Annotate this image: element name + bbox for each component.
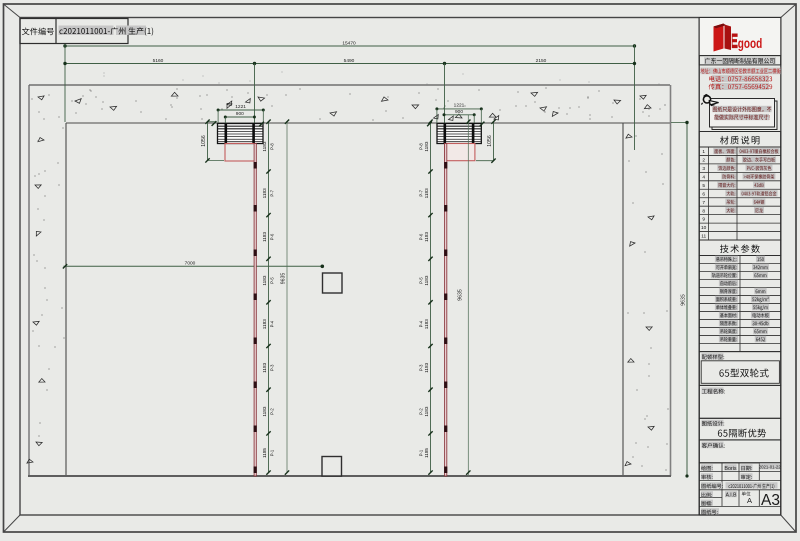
svg-text:A3: A3: [761, 492, 780, 509]
svg-text:P-2: P-2: [419, 408, 424, 415]
svg-text:8: 8: [702, 208, 705, 214]
svg-text:5160: 5160: [153, 58, 164, 64]
svg-text:1183: 1183: [262, 232, 267, 242]
svg-text:900: 900: [236, 111, 244, 117]
svg-text:1221: 1221: [235, 104, 246, 110]
svg-text:P-4: P-4: [270, 320, 275, 327]
svg-text:A: A: [747, 496, 752, 505]
svg-text:900: 900: [455, 109, 463, 115]
svg-text:P-6: P-6: [419, 233, 424, 240]
svg-text:P-4: P-4: [419, 320, 424, 327]
svg-text:1221: 1221: [454, 103, 465, 109]
svg-text:9635: 9635: [280, 273, 286, 285]
svg-text:1185: 1185: [424, 448, 429, 458]
svg-text:P-8: P-8: [419, 143, 424, 150]
svg-text:5490: 5490: [344, 58, 355, 64]
svg-text:1183: 1183: [424, 275, 429, 285]
svg-text:2: 2: [702, 158, 705, 164]
svg-text:good: good: [738, 35, 763, 51]
svg-text:1183: 1183: [424, 406, 429, 416]
svg-text:1183: 1183: [262, 362, 267, 372]
svg-text:1183: 1183: [262, 406, 267, 416]
svg-text:11: 11: [701, 234, 706, 240]
svg-text:P-2: P-2: [270, 408, 275, 415]
svg-text:P-8: P-8: [270, 143, 275, 150]
svg-text:1183: 1183: [424, 141, 429, 151]
svg-text:7: 7: [702, 200, 705, 206]
svg-text:P-3: P-3: [419, 364, 424, 371]
svg-text:6: 6: [702, 191, 705, 197]
svg-text:1183: 1183: [424, 232, 429, 242]
svg-text:P-5: P-5: [270, 277, 275, 284]
svg-text:5: 5: [702, 183, 705, 189]
svg-text:P-6: P-6: [270, 233, 275, 240]
svg-text:1183: 1183: [262, 141, 267, 151]
svg-text:1183: 1183: [424, 362, 429, 372]
svg-text:3: 3: [702, 166, 705, 172]
svg-text:P-7: P-7: [270, 189, 275, 196]
svg-text:1185: 1185: [262, 448, 267, 458]
svg-text:Boris: Boris: [724, 466, 737, 472]
svg-text:1183: 1183: [262, 275, 267, 285]
svg-text:1056: 1056: [201, 135, 207, 147]
svg-text:1056: 1056: [487, 135, 493, 147]
svg-text:1183: 1183: [424, 188, 429, 198]
svg-text:A.I.B: A.I.B: [726, 493, 738, 499]
svg-text:15470: 15470: [342, 40, 356, 46]
svg-text:10: 10: [701, 225, 707, 231]
svg-text:P-1: P-1: [419, 449, 424, 456]
svg-text:1183: 1183: [262, 188, 267, 198]
svg-text:4: 4: [702, 174, 705, 180]
svg-text:P-5: P-5: [419, 277, 424, 284]
svg-text:7000: 7000: [185, 260, 196, 266]
svg-text:2150: 2150: [536, 58, 547, 64]
svg-text:2021-01-22: 2021-01-22: [759, 465, 782, 470]
svg-text:1: 1: [702, 149, 705, 155]
svg-text:9: 9: [702, 217, 705, 223]
svg-text:1183: 1183: [424, 319, 429, 329]
svg-text:1183: 1183: [262, 319, 267, 329]
svg-text:P-3: P-3: [270, 364, 275, 371]
svg-text:9635: 9635: [458, 289, 464, 301]
svg-text:P-7: P-7: [419, 189, 424, 196]
svg-text:P-1: P-1: [270, 449, 275, 456]
